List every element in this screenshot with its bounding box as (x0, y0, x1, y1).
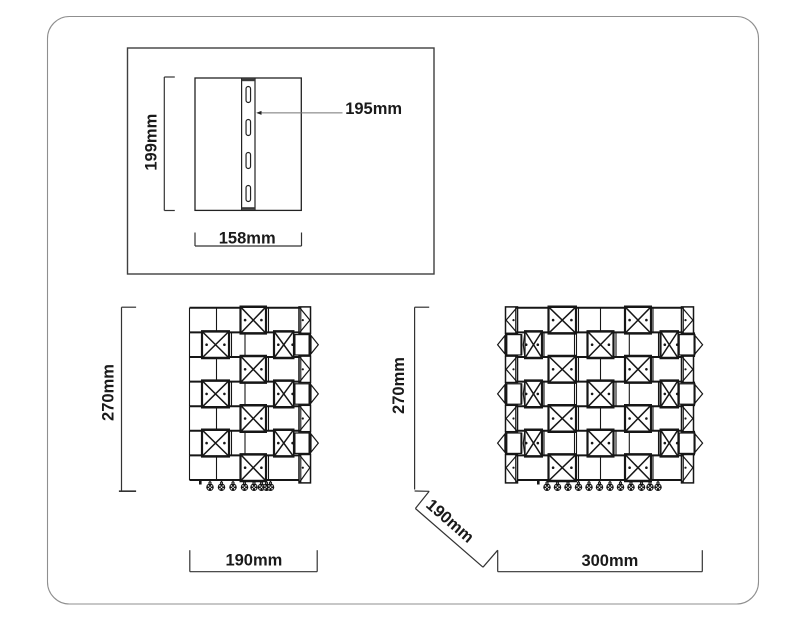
svg-text:158mm: 158mm (219, 230, 276, 248)
svg-text:199mm: 199mm (143, 114, 161, 171)
svg-text:270mm: 270mm (100, 364, 118, 421)
svg-text:195mm: 195mm (345, 100, 402, 118)
svg-text:190mm: 190mm (225, 552, 282, 570)
svg-text:300mm: 300mm (581, 552, 638, 570)
svg-text:270mm: 270mm (390, 357, 408, 414)
